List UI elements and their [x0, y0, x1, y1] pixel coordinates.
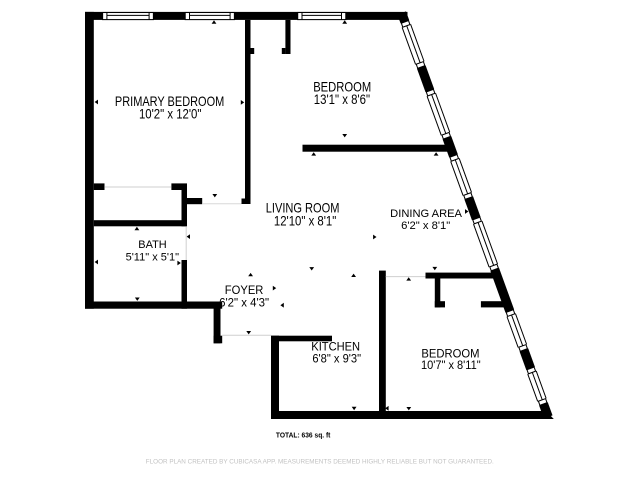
- svg-text:TOTAL: 636 sq. ft: TOTAL: 636 sq. ft: [276, 430, 331, 439]
- svg-text:13'1" x 8'6": 13'1" x 8'6": [314, 91, 370, 107]
- svg-text:BATH: BATH: [138, 239, 166, 251]
- svg-text:FOYER: FOYER: [225, 285, 264, 297]
- svg-text:10'2" x 12'0": 10'2" x 12'0": [139, 106, 202, 121]
- svg-text:10'7" x 8'11": 10'7" x 8'11": [421, 358, 481, 372]
- svg-text:6'2" x 4'3": 6'2" x 4'3": [219, 297, 269, 309]
- svg-text:6'2" x 8'1": 6'2" x 8'1": [401, 220, 450, 232]
- svg-text:12'10" x 8'1": 12'10" x 8'1": [274, 214, 337, 229]
- svg-text:5'11" x 5'1": 5'11" x 5'1": [126, 252, 180, 264]
- svg-text:DINING AREA: DINING AREA: [390, 208, 463, 220]
- svg-text:6'8" x 9'3": 6'8" x 9'3": [312, 351, 361, 365]
- svg-text:FLOOR PLAN CREATED BY CUBICASA: FLOOR PLAN CREATED BY CUBICASA APP. MEAS…: [146, 458, 494, 465]
